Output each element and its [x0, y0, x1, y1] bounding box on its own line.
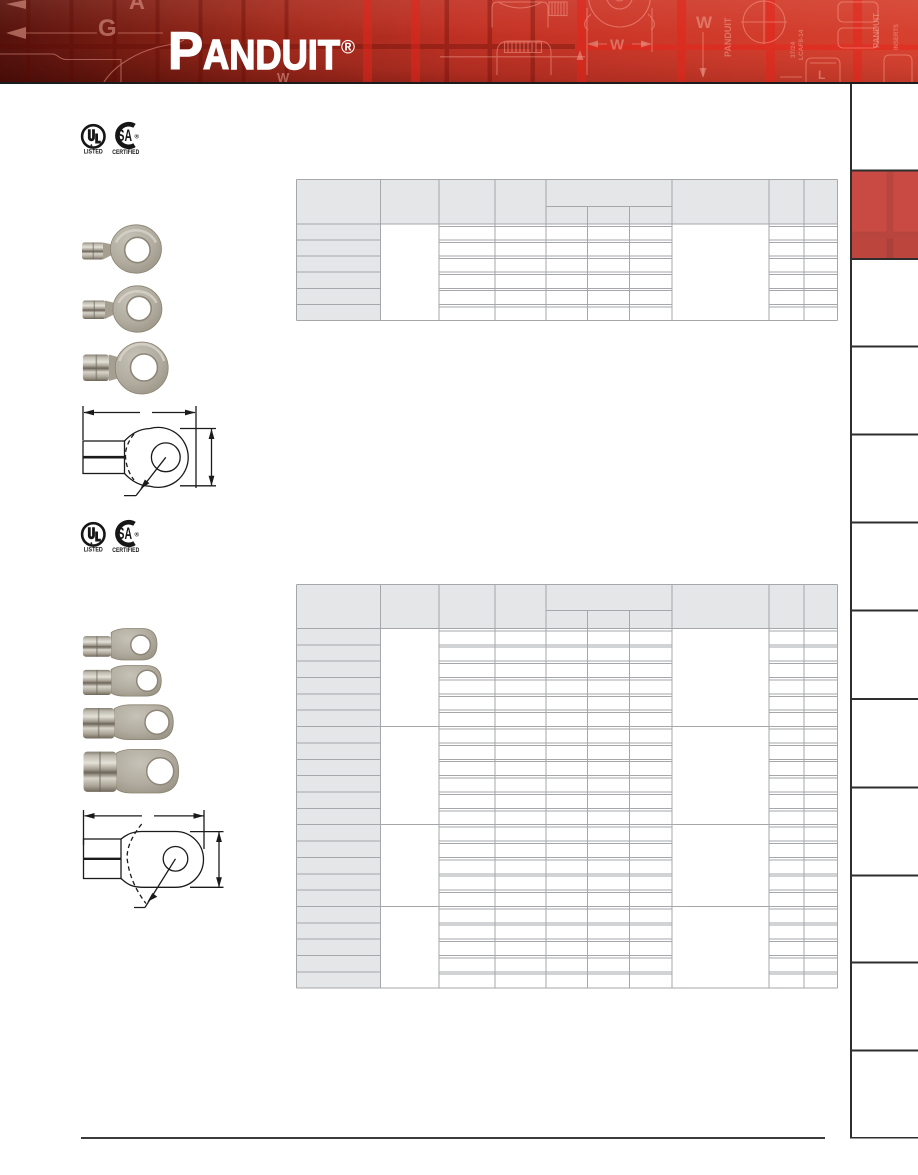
svg-text:37/24: 37/24 [790, 41, 797, 58]
svg-text:SA: SA [118, 125, 133, 144]
svg-text:INSERTS: INSERTS [894, 24, 900, 50]
svg-text:SA: SA [118, 523, 133, 542]
svg-text:CERTIFIED: CERTIFIED [112, 547, 139, 553]
svg-text:W: W [610, 37, 625, 54]
svg-text:LISTED: LISTED [84, 547, 103, 554]
svg-text:PANDUIT: PANDUIT [872, 13, 881, 48]
svg-text:G: G [98, 15, 117, 42]
svg-text:LCAF8-14: LCAF8-14 [798, 29, 805, 60]
svg-text:W: W [696, 13, 713, 32]
svg-text:®: ® [341, 38, 355, 59]
svg-text:CERTIFIED: CERTIFIED [112, 149, 139, 155]
svg-text:LISTED: LISTED [84, 149, 103, 156]
svg-text:A: A [129, 0, 145, 14]
svg-text:ANDUIT: ANDUIT [203, 31, 340, 78]
svg-text:®: ® [135, 531, 140, 538]
svg-text:P: P [168, 22, 203, 81]
svg-text:®: ® [135, 133, 140, 140]
svg-text:PANDUIT: PANDUIT [723, 17, 733, 57]
svg-text:L: L [818, 68, 825, 82]
